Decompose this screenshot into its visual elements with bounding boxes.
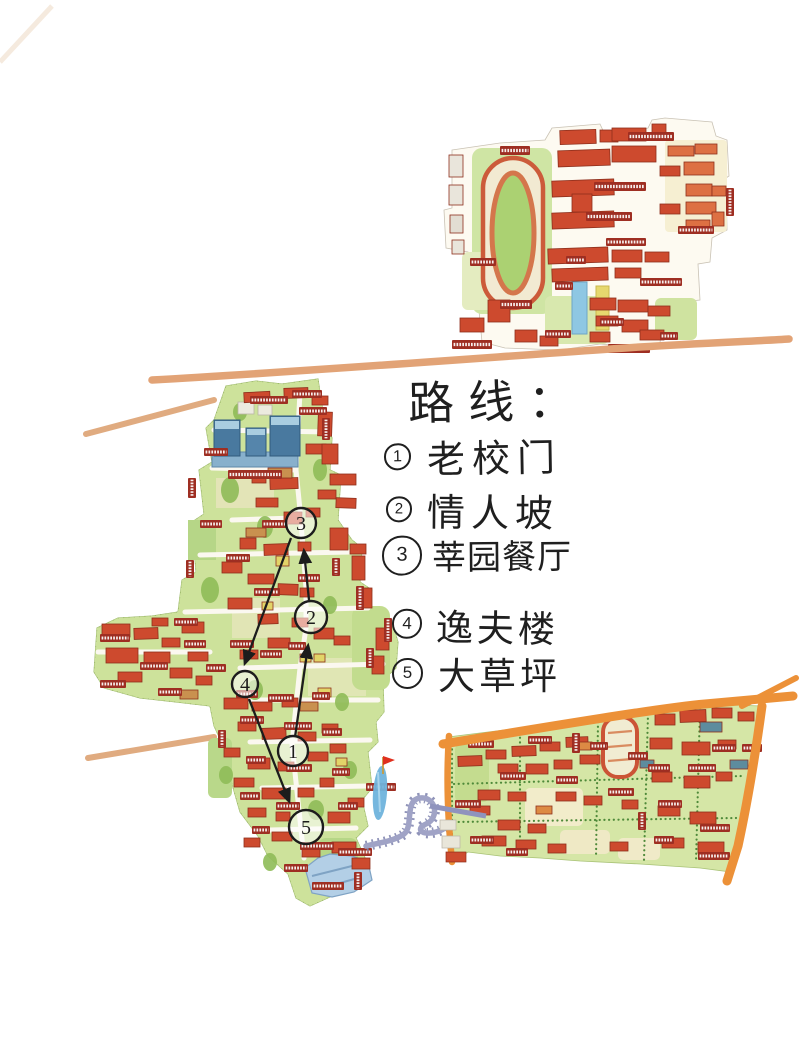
building xyxy=(314,654,325,662)
svg-text:1: 1 xyxy=(288,741,298,763)
building xyxy=(252,702,272,711)
campus-map-page: 1 2 3 4 5 路线： 1 老校门 2 情人坡 3 莘园餐厅 4 逸夫 xyxy=(0,0,799,1046)
building xyxy=(508,792,526,801)
building xyxy=(552,267,608,282)
route-marker-1: 1 xyxy=(278,736,308,766)
building xyxy=(308,752,328,761)
building xyxy=(244,838,260,847)
building xyxy=(668,146,694,156)
building xyxy=(698,842,724,853)
building xyxy=(580,755,600,764)
building xyxy=(655,714,675,725)
building xyxy=(320,778,334,787)
svg-text:2: 2 xyxy=(306,607,316,629)
building xyxy=(690,812,716,824)
building xyxy=(612,250,642,262)
building xyxy=(458,756,482,767)
building xyxy=(738,712,754,721)
building xyxy=(298,788,314,797)
south-athletic-track xyxy=(603,717,637,777)
building xyxy=(584,796,602,805)
building-label-tag xyxy=(640,278,682,286)
building xyxy=(526,764,548,774)
building xyxy=(650,738,672,749)
building xyxy=(684,162,714,175)
building xyxy=(536,806,552,814)
building xyxy=(134,628,158,640)
building xyxy=(700,722,722,732)
building xyxy=(300,702,318,711)
south-campus-map xyxy=(430,678,796,881)
building xyxy=(352,556,365,580)
building xyxy=(298,542,311,551)
building xyxy=(615,268,641,278)
svg-text:5: 5 xyxy=(301,817,311,839)
building xyxy=(234,778,254,787)
building xyxy=(652,772,672,782)
building xyxy=(162,638,180,647)
building xyxy=(256,498,278,507)
building xyxy=(498,764,518,773)
building xyxy=(318,490,336,499)
building xyxy=(660,166,680,176)
building xyxy=(170,668,192,678)
building xyxy=(618,300,648,312)
building xyxy=(246,528,266,537)
building xyxy=(336,498,356,509)
left-road-upper xyxy=(86,400,214,434)
building xyxy=(350,544,366,554)
building xyxy=(515,330,537,342)
building xyxy=(680,710,706,723)
building xyxy=(498,820,520,830)
building xyxy=(330,744,346,753)
building xyxy=(334,636,350,645)
building xyxy=(645,252,669,262)
building xyxy=(712,212,724,226)
building xyxy=(682,742,710,755)
building xyxy=(684,776,710,788)
building xyxy=(262,788,286,799)
building xyxy=(548,844,566,853)
building xyxy=(612,146,656,162)
top-campus-map xyxy=(444,118,734,353)
building xyxy=(222,562,242,573)
building xyxy=(449,155,463,177)
building xyxy=(460,318,484,332)
svg-text:4: 4 xyxy=(240,674,250,696)
building xyxy=(622,800,638,809)
building xyxy=(152,618,168,626)
building xyxy=(106,648,138,663)
pool xyxy=(572,282,587,334)
campus-map-illustration: 1 2 3 4 5 xyxy=(0,0,799,1046)
building xyxy=(450,215,463,233)
route-marker-2: 2 xyxy=(295,601,327,633)
building xyxy=(262,728,286,740)
route-marker-5: 5 xyxy=(289,810,323,844)
building xyxy=(686,184,712,196)
building xyxy=(558,149,611,167)
building xyxy=(528,824,546,833)
building xyxy=(660,204,680,214)
building xyxy=(196,676,212,685)
building xyxy=(240,538,256,549)
building xyxy=(188,652,208,661)
building xyxy=(590,298,616,310)
building xyxy=(730,760,748,769)
building xyxy=(572,194,592,212)
building xyxy=(512,746,536,757)
corner-smudge xyxy=(0,6,52,62)
building xyxy=(554,760,572,769)
building xyxy=(352,858,370,869)
building xyxy=(556,792,576,801)
building xyxy=(452,240,464,254)
building xyxy=(336,758,347,766)
building xyxy=(516,840,536,849)
building xyxy=(560,129,596,144)
building xyxy=(712,186,726,196)
building xyxy=(248,808,266,817)
building xyxy=(144,652,170,663)
building xyxy=(449,185,463,205)
building xyxy=(278,584,298,596)
building xyxy=(610,842,628,851)
building xyxy=(648,306,670,316)
building xyxy=(330,474,356,485)
stream xyxy=(371,766,389,821)
left-road-lower xyxy=(88,737,214,758)
building xyxy=(228,598,252,609)
building xyxy=(695,144,717,154)
building xyxy=(590,332,610,342)
building xyxy=(686,202,716,214)
svg-text:3: 3 xyxy=(296,513,306,535)
building xyxy=(224,748,240,757)
building xyxy=(478,790,500,800)
athletic-track xyxy=(483,158,543,308)
building xyxy=(330,528,348,550)
building xyxy=(328,812,350,823)
building xyxy=(276,812,290,821)
building xyxy=(716,772,732,781)
building xyxy=(180,690,198,699)
building xyxy=(224,698,248,709)
building xyxy=(248,574,274,584)
building xyxy=(270,478,298,490)
main-campus-map xyxy=(94,379,398,906)
route-marker-4: 4 xyxy=(232,671,258,697)
building xyxy=(268,638,290,648)
building xyxy=(712,708,732,718)
route-marker-3: 3 xyxy=(286,508,316,538)
building xyxy=(322,444,338,464)
building xyxy=(486,750,506,759)
